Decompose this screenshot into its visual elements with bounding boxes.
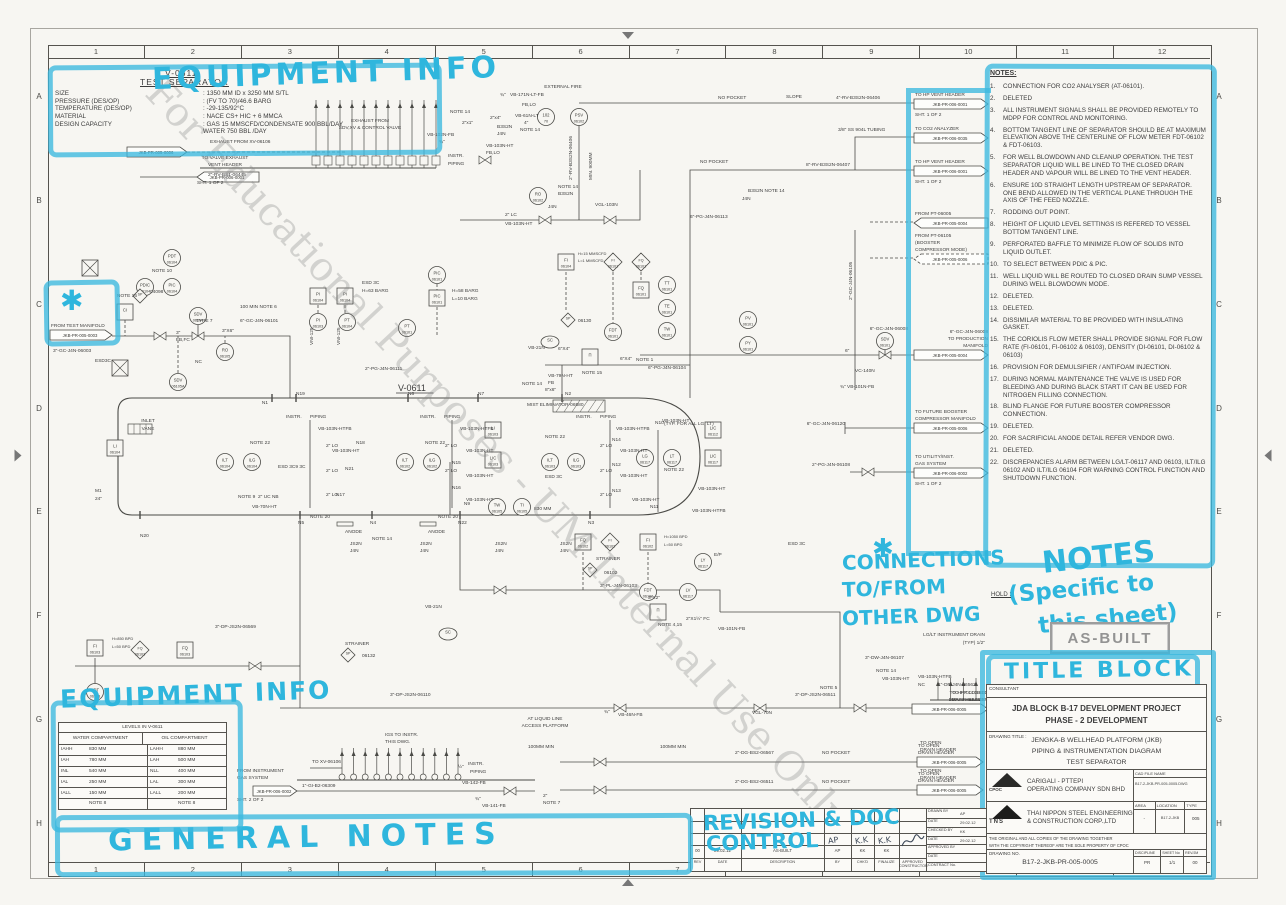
- cpoc-label: CPOC: [989, 787, 1025, 792]
- instrument-tag: LG: [642, 454, 648, 459]
- instrument-tag: ILG: [429, 458, 436, 463]
- pipe-line: [112, 336, 290, 398]
- note-item: 2.DELETED: [990, 95, 1206, 103]
- instrument-number: 06105: [220, 355, 231, 359]
- approval-label: CONTRACT No.: [926, 862, 986, 871]
- valve-icon: [249, 662, 255, 670]
- pipe-class-break: [396, 156, 404, 165]
- pid-label: INLET: [141, 418, 155, 424]
- pid-label: ¾": [604, 709, 610, 715]
- pid-label: 8"x6": [545, 387, 556, 393]
- pid-label: NO POCKET: [700, 159, 728, 165]
- pid-label: AT LIQUID LINE: [527, 716, 562, 722]
- note-item: 20.FOR SACRIFICIAL ANODE DETAIL REFER VE…: [990, 435, 1206, 443]
- note-item: 1.CONNECTION FOR CO2 ANALYSER (AT-06101)…: [990, 83, 1206, 91]
- pid-label: NOTE 22: [545, 434, 565, 440]
- flow-arrow: [398, 751, 402, 756]
- pid-label: J4N: [548, 204, 557, 210]
- connector-label: TO UTILITY/INST.: [915, 454, 954, 460]
- pipe-class-break: [432, 156, 440, 165]
- rev-line: [691, 858, 926, 859]
- rev-value: AS-BUILT: [741, 848, 824, 853]
- connector-label: FROM TEST MANIFOLD: [51, 323, 105, 329]
- pid-label: 2" LO: [600, 492, 612, 498]
- pid-label: 6"-GC-J4N-06120: [807, 421, 846, 427]
- rev-line: [691, 833, 926, 834]
- pid-label: FB,LO: [522, 102, 536, 108]
- flow-arrow: [386, 751, 390, 756]
- instrument-number: 06102: [578, 545, 589, 549]
- instrument-number: 06103: [90, 695, 101, 699]
- pid-label: 6"-PG-J4N-06104: [648, 365, 686, 371]
- pid-label: NOTE 14: [520, 127, 540, 133]
- pid-label: INSTR.: [448, 153, 464, 159]
- rev-value: 00: [1184, 857, 1206, 865]
- pid-label: 100 MIN NOTE 6: [240, 304, 277, 310]
- pid-label: B3S2N NOTE 14: [748, 188, 785, 194]
- pid-label: INSTR.: [420, 414, 436, 420]
- pid-label: N19: [296, 391, 305, 397]
- pid-label: NOTE 14: [558, 184, 578, 190]
- instrument-number: 06101: [880, 344, 891, 348]
- valve-icon: [594, 758, 600, 766]
- pid-label: VB-21N: [425, 604, 442, 610]
- instrument-number: 06102: [605, 545, 616, 549]
- pipe-class-break: [336, 156, 344, 165]
- flow-arrow: [375, 751, 379, 756]
- flow-arrow: [352, 751, 356, 756]
- pid-label: IGS TO INSTR.: [385, 732, 418, 738]
- valve-icon: [198, 332, 204, 340]
- pid-label: NOTE 14: [522, 381, 542, 387]
- pid-label: VB-103N-HTFB: [460, 426, 494, 432]
- instrument-tag: SP: [588, 567, 593, 571]
- pid-label: VNI-125: [309, 327, 315, 345]
- connector-label: COMPRESSOR MANIFOLD: [915, 416, 976, 422]
- manifold-valve: [397, 774, 403, 780]
- note-item: 7.RODDING OUT POINT.: [990, 209, 1206, 217]
- pid-label: 6"-GC-J4N-06008: [870, 326, 909, 332]
- pid-label: 2"x4": [490, 115, 501, 121]
- pid-label: 2"-GC-J4N-06105: [848, 261, 854, 300]
- pid-label: NO POCKET: [822, 779, 850, 785]
- pid-label: 1"-GI-B2-06309: [302, 783, 336, 789]
- pid-label: THIS DWG.: [385, 739, 410, 745]
- connector-tag: JKB-PR-006-0001: [933, 169, 968, 174]
- pid-label: 2" LO: [600, 443, 612, 449]
- manifold-valve: [432, 774, 438, 780]
- operator-name-1: CARIGALI - PTTEPI: [1027, 778, 1133, 786]
- valve-icon: [879, 351, 885, 359]
- pid-label: NOTE 4,15: [658, 622, 682, 628]
- pid-label: E/P: [714, 552, 722, 558]
- instrument-number: 06105A: [171, 385, 185, 389]
- pid-label: VB-103N-HT: [466, 473, 494, 479]
- rev-line: [691, 821, 926, 822]
- instrument-number: 06112: [708, 433, 718, 437]
- connector-label: FROM PT-06005: [915, 211, 952, 217]
- instrument-number: 06102: [533, 199, 544, 203]
- connector-tag: JKB-PR-005-0004: [933, 353, 968, 358]
- pid-label: NOTE 14: [372, 536, 392, 542]
- valve-icon: [500, 586, 506, 594]
- valve-icon: [862, 468, 868, 476]
- instrument-number: 06103: [135, 653, 146, 657]
- instrument-tag: FDT: [91, 688, 100, 693]
- flow-arrow: [433, 751, 437, 756]
- pipe-class-break: [408, 156, 416, 165]
- valve-icon: [494, 586, 500, 594]
- pid-label: NOTE 1: [636, 357, 654, 363]
- pid-label: B3S2N: [497, 124, 513, 130]
- contractor-name-2: & CONSTRUCTION CORP.,LTD: [1027, 818, 1133, 826]
- pid-label: ACCESS PLATFORM: [522, 723, 569, 729]
- instrument-number: 06102: [643, 545, 654, 549]
- approval-signature: [900, 833, 926, 849]
- instrument-number: 06101: [636, 293, 647, 297]
- pid-label: L=50 BPD: [664, 542, 682, 547]
- pipe-class-break: [420, 156, 428, 165]
- rev-value: 00: [691, 848, 704, 853]
- title-block: CONSULTANT JDA BLOCK B-17 DEVELOPMENT PR…: [986, 684, 1207, 874]
- connector-tag: JKB-PR-006-0005: [932, 788, 967, 793]
- pid-label: 6"-GC-J4N-06101: [240, 318, 279, 324]
- pid-label: JS2N: [420, 541, 432, 547]
- pid-label: N13: [612, 488, 621, 494]
- note-item: 16.PROVISION FOR DEMULSIFIER / ANTIFOAM …: [990, 364, 1206, 372]
- pid-label: NOTE 9: [238, 494, 256, 500]
- instrument-tag: TE: [664, 304, 670, 309]
- instrument-number: 06104: [313, 299, 324, 303]
- pid-label: H=850 BPD: [112, 636, 133, 641]
- connector-label: TO FUTURE BOOSTER: [915, 409, 968, 415]
- equipment-spec-row: DESIGN CAPACITY: GAS 15 MMSCFD/CONDENSAT…: [55, 121, 435, 129]
- pen-initials: AP: [827, 835, 838, 845]
- pid-label: L=50 BPD: [112, 644, 130, 649]
- manifold-valve: [374, 774, 380, 780]
- instrument-number: 06101: [432, 301, 443, 305]
- pid-label: TYPE 7: [196, 318, 213, 324]
- pid-label: PIPING: [600, 414, 617, 420]
- valve-icon: [510, 787, 516, 795]
- valve-icon: [620, 704, 626, 712]
- valve-icon: [604, 216, 610, 224]
- pid-label: DRAIN HEADER: [920, 747, 957, 753]
- instrument-tag: PIC: [434, 294, 441, 299]
- tns-label: TNS: [989, 819, 1025, 825]
- pid-label: 3": [176, 330, 181, 336]
- pid-label: FB,FC: [176, 337, 190, 343]
- instrument-tag: PDT: [168, 254, 177, 259]
- project-line2: PHASE - 2 DEVELOPMENT: [987, 715, 1206, 727]
- instrument-tag: FQ: [639, 259, 644, 263]
- drawing-no-value: B17-2-JKB-PR-005-0005: [987, 859, 1133, 866]
- valve-icon: [545, 216, 551, 224]
- pid-label: VB-61N-LT: [515, 113, 539, 119]
- pid-label: EXTERNAL FIRE: [544, 84, 581, 90]
- connector-tag: JKB-PR-005-0003: [63, 333, 98, 338]
- pid-label: 04098: [150, 289, 164, 295]
- rev-value: KK: [874, 848, 899, 853]
- instrument-number: 06103: [180, 653, 191, 657]
- connector-label: SHT. 1 OF 2: [915, 179, 942, 185]
- pid-label: ESD 3C: [788, 541, 806, 547]
- manifold-valve: [443, 774, 449, 780]
- pid-label: 3"-DP-JS2N-06511: [795, 692, 836, 698]
- pid-label: 2" LO: [600, 468, 612, 474]
- rev-header: FINALIZE: [874, 860, 899, 864]
- equipment-spec-row: TEMPERATURE (DES/OP): -29-135/92°C: [55, 105, 435, 113]
- instrument-tag: ILG: [573, 458, 580, 463]
- instrument-tag: 102: [543, 113, 551, 118]
- pid-label: VB-103N-HT: [632, 497, 660, 503]
- pid-drawing-sheet: 123456789101112 123456789101112 ABCDEFGH…: [0, 0, 1286, 905]
- connector-tag: JKB-PR-005-0004: [933, 221, 968, 226]
- pid-label: J4N: [742, 196, 751, 202]
- pid-label: 3"-DW-J4N-06107: [865, 655, 904, 661]
- drawing-number-row: DRAWING NO. B17-2-JKB-PR-005-0005 DISCIP…: [987, 849, 1206, 874]
- instrument-tag: RO: [535, 192, 542, 197]
- instrument-number: 06104: [342, 325, 353, 329]
- pid-label: N6: [408, 391, 414, 397]
- instrument-tag: PI: [316, 318, 320, 323]
- operator-row: CPOC CARIGALI - PTTEPI OPERATING COMPANY…: [987, 769, 1206, 802]
- pid-label: NO POCKET: [822, 750, 850, 756]
- pid-label: 2"-RV-BS1-06445: [208, 172, 246, 178]
- instrument-tag: PY: [745, 341, 751, 346]
- pid-label: VB-70N-HT: [252, 504, 277, 510]
- pid-label: H=63 BARG: [362, 288, 389, 294]
- equipment-spec-row: MATERIAL: NACE CS+ HIC + 6 MMCA: [55, 113, 435, 121]
- pid-label: VB-103N-HT: [620, 473, 648, 479]
- valve-icon: [485, 156, 491, 164]
- instrument-tag: PV: [745, 316, 751, 321]
- connector-tag: JKB-PR-006-0035: [933, 136, 968, 141]
- pid-label: 2"-PG-J4N-06111: [365, 366, 403, 372]
- note-item: 14.DISSIMILAR MATERIAL TO BE PROVIDED WI…: [990, 317, 1206, 333]
- valve-icon: [192, 332, 198, 340]
- instrument-tag: FQ: [182, 646, 189, 651]
- connector-tag: JKB-PR-006-0002: [257, 789, 292, 794]
- pid-label: J4N: [495, 548, 504, 554]
- pid-label: ANODE: [345, 529, 362, 535]
- instrument-tag: PT: [404, 324, 410, 329]
- pid-label: N3: [588, 520, 594, 526]
- rev-header: APPROVED CONSTRUCTOR: [899, 860, 926, 868]
- pid-label: PIPING: [310, 414, 327, 420]
- pid-label: JS2N: [560, 541, 572, 547]
- pid-label: STRAINER: [345, 641, 370, 647]
- rev-value: AP: [824, 848, 851, 853]
- pid-label: INSTR.: [286, 414, 302, 420]
- pid-label: 2": [543, 793, 548, 799]
- pid-label: JS2N: [495, 541, 507, 547]
- instrument-tag: TW: [664, 327, 671, 332]
- instrument-tag: FDT: [609, 328, 618, 333]
- pid-label: N21: [345, 466, 354, 472]
- cad-file-label: CAD FILE NAME: [1134, 770, 1206, 778]
- pid-label: (TYP) 1/2": [963, 640, 986, 646]
- pid-label: B3S2N: [558, 191, 574, 197]
- connector-label: 6"-GC-J4N-06008: [950, 329, 989, 335]
- pid-label: N2: [565, 391, 571, 397]
- instrument-number: 06101: [608, 265, 619, 269]
- pid-label: J4N: [560, 548, 569, 554]
- flow-arrow: [340, 751, 344, 756]
- connector-label: (BOOSTER: [915, 240, 941, 246]
- rev-label: REV/JM: [1184, 850, 1206, 857]
- pid-label: 3"-DP-JS2N-06569: [215, 624, 256, 630]
- note-item: 6.ENSURE 10D STRAIGHT LENGTH UPSTREAM OF…: [990, 182, 1206, 205]
- connector-label: TO CO2 ANALYZER: [915, 126, 959, 132]
- levels-table: LEVELS IN V-0611 WATER COMPARTMENT OIL C…: [58, 722, 227, 810]
- instrument-tag: CI: [123, 308, 127, 313]
- drawing-title-3: TEST SEPARATOR: [987, 757, 1206, 768]
- instrument-tag: ILT: [402, 458, 408, 463]
- connector-label: MANIFOLD: [963, 343, 988, 349]
- pid-label: 2"-RV-B3S2N-06406: [568, 136, 574, 180]
- pid-label: ¾": [475, 796, 481, 802]
- instrument-number: 06105: [517, 510, 528, 514]
- instrument-tag: RO: [222, 348, 229, 353]
- instrument-number: 06104: [247, 465, 258, 469]
- connector-label: SHT. 1 OF 2: [915, 112, 942, 118]
- pid-label: 3"-DP-JS2N-06110: [390, 692, 431, 698]
- mist-eliminator-hatch: [588, 400, 596, 412]
- pid-label: 2" UC NB: [258, 494, 279, 500]
- drawing-title-label: DRAWING TITLE :: [989, 734, 1027, 739]
- connector-label: SHT. 1 OF 2: [915, 481, 942, 487]
- pid-label: NOTE 14: [450, 109, 470, 115]
- levels-row: IALL150 MMLALL200 MM: [59, 788, 226, 799]
- note-item: 11.WELL LIQUID WILL BE ROUTED TO CLOSED …: [990, 273, 1206, 289]
- connector-tag: JKB-PR-006-0005: [932, 760, 967, 765]
- instrument-tag: PSV: [575, 113, 584, 118]
- manifold-valve: [351, 774, 357, 780]
- instrument-number: 06103: [488, 433, 499, 437]
- instrument-tag: PIC: [434, 271, 441, 276]
- instrument-number: 06104: [561, 265, 572, 269]
- pid-label: ¾" VB-101N-FB: [840, 384, 874, 390]
- approval-label: APPROVED BY: [926, 844, 986, 853]
- pid-label: SLOPE: [786, 94, 802, 100]
- rev-line: [691, 845, 926, 846]
- pid-label: VB-79N-HT: [548, 373, 573, 379]
- cpoc-logo: CPOC: [989, 773, 1025, 799]
- pid-label: 1"-DP-J4N-06562: [938, 682, 976, 688]
- pid-label: VB-21N: [528, 345, 545, 351]
- pid-label: L=10 BARG: [452, 296, 478, 302]
- pipe-class-break: [360, 156, 368, 165]
- pid-label: FB,LO: [486, 150, 500, 156]
- approval-label: DATE: [926, 853, 986, 862]
- pid-label: 3"X2": [648, 595, 660, 601]
- equipment-spec-row: PRESSURE (DES/OP): (FV TO 70)/46.6 BARG: [55, 98, 435, 106]
- pid-label: VB-103N-HT: [486, 143, 514, 149]
- pid-label: PIPING: [470, 769, 487, 775]
- pid-label: VB-141-FB: [482, 803, 506, 809]
- pid-label: EXHAUST FROM XV-06106: [210, 139, 271, 145]
- as-built-stamp: AS-BUILT: [1050, 622, 1170, 654]
- revision-table: 00REV29.02.12DATEAS-BUILTDESCRIPTIONAPBY…: [690, 808, 987, 872]
- pid-label: H=1050 BPD: [664, 534, 688, 539]
- pid-label: VB-103N-HT: [620, 448, 648, 454]
- instrument-tag: FDT: [644, 588, 653, 593]
- pid-label: H=58 BARG: [452, 288, 479, 294]
- pid-label: NOTE 10: [152, 268, 172, 274]
- pid-label: INSTR.: [576, 414, 592, 420]
- pid-label: N16: [452, 485, 461, 491]
- approval-value: 29.02.12: [960, 820, 986, 825]
- connector-tag: JKB-PR-006-0002: [933, 471, 968, 476]
- note-item: 3.ALL INSTRUMENT SIGNALS SHALL BE PROVID…: [990, 107, 1206, 123]
- contractor-row: TNS THAI NIPPON STEEL ENGINEERING & CONS…: [987, 801, 1206, 834]
- mist-eliminator-hatch: [596, 400, 604, 412]
- pid-label: SHT. 2 OF 2: [237, 797, 264, 803]
- instrument-number: 06101: [662, 311, 673, 315]
- instrument-tag: PI: [316, 292, 320, 297]
- valve-icon: [600, 786, 606, 794]
- pid-label: VB-103N-HT: [698, 486, 726, 492]
- pid-label: ESD 3C: [545, 474, 563, 480]
- connector-label: GAS SYSTEM: [915, 461, 946, 467]
- levels-title: LEVELS IN V-0611: [59, 723, 226, 733]
- type-value: 005: [1185, 810, 1206, 821]
- pid-label: VB-103N-HT: [882, 676, 910, 682]
- pid-label: 4": [524, 120, 529, 126]
- consultant-label: CONSULTANT: [989, 686, 1019, 691]
- drawing-title: DRAWING TITLE : JENGKA-B WELLHEAD PLATFO…: [987, 731, 1206, 770]
- valve-icon: [854, 704, 860, 712]
- pid-label: VB-101N-FB: [718, 626, 745, 632]
- rev-header: DESCRIPTION: [741, 860, 824, 864]
- pid-label: ESD 3C: [362, 280, 380, 286]
- instrument-tag: SDV: [194, 312, 203, 317]
- instrument-tag: ILG: [249, 458, 256, 463]
- instrument-number: 06102: [400, 465, 411, 469]
- pid-label: NO POCKET: [718, 95, 746, 101]
- instrument-tag: SP: [138, 293, 143, 297]
- instrument-tag: PIC: [169, 283, 176, 288]
- instrument-tag: PT: [344, 318, 350, 323]
- valve-icon: [885, 351, 891, 359]
- pid-label: VB-103N-HT: [505, 221, 533, 227]
- location-label: LOCATION: [1156, 802, 1185, 810]
- pipe-class-break: [324, 156, 332, 165]
- pid-label: NOTE 15: [582, 370, 602, 376]
- instrument-number: 06101: [636, 265, 647, 269]
- pipe-line: [690, 170, 914, 398]
- pid-label: ½": [458, 763, 464, 770]
- instrument-tag: FI: [646, 538, 650, 543]
- pid-label: 06130: [578, 318, 592, 324]
- pid-label: N12: [612, 462, 621, 468]
- pid-label: 6"X4": [620, 356, 632, 362]
- rev-header: DATE: [704, 860, 741, 864]
- note-item: 9.PERFORATED BAFFLE TO MINIMIZE FLOW OF …: [990, 241, 1206, 257]
- pid-label: 830 MM: [534, 506, 551, 512]
- pid-label: FB: [548, 380, 554, 386]
- pid-label: NC: [918, 682, 925, 688]
- pid-label: VB-103N-HTFB: [692, 508, 726, 514]
- pid-label: PIPING: [448, 161, 465, 167]
- pipe-class-break: [312, 156, 320, 165]
- pid-label: N18: [356, 440, 365, 446]
- pid-label: N20: [140, 533, 149, 539]
- pid-label: N7: [478, 391, 484, 397]
- instrument-tag: PI: [343, 292, 347, 297]
- pen-initials: K.K: [877, 835, 891, 846]
